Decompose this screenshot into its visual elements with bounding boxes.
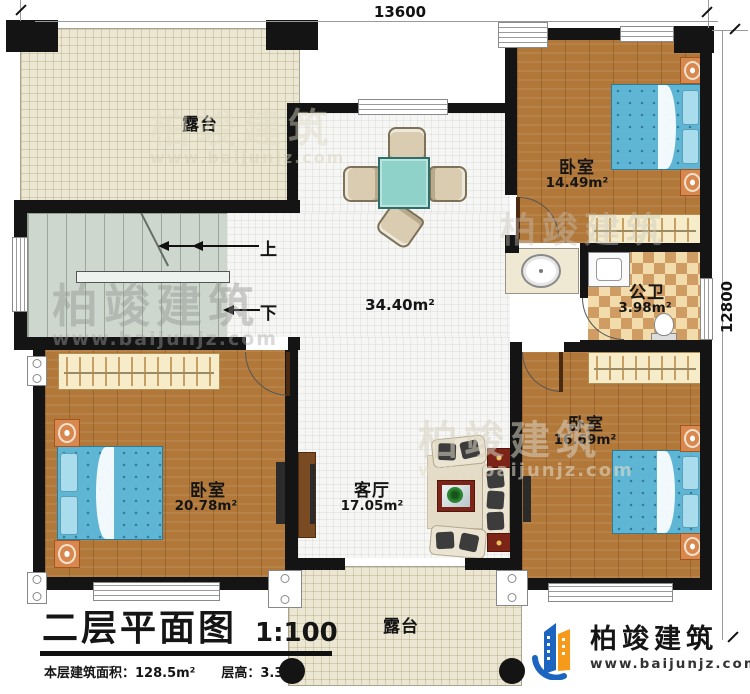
- wall: [287, 103, 358, 113]
- wall: [448, 103, 510, 113]
- bed: [612, 450, 702, 534]
- blanket-fold: [657, 451, 675, 533]
- wall: [298, 558, 345, 570]
- stairs-down-label: 下: [260, 299, 277, 324]
- door-leaf: [286, 352, 290, 396]
- arrowhead: [192, 241, 203, 251]
- title-block: 二层平面图 1:100: [42, 599, 338, 651]
- plant: [447, 487, 463, 503]
- logo-mark-icon: [528, 618, 582, 680]
- wall: [14, 337, 246, 350]
- stairs-down-arrow: [232, 309, 260, 311]
- room-label-terrace-top: 露台: [150, 110, 250, 135]
- logo-website: www.baijunjz.com: [590, 656, 750, 672]
- room-area-living: 17.05m²: [322, 498, 422, 514]
- wardrobe: [58, 353, 220, 390]
- plan-title: 二层平面图: [42, 599, 237, 651]
- window: [620, 26, 674, 42]
- wall: [287, 103, 298, 213]
- window: [548, 583, 673, 602]
- wall: [505, 28, 517, 195]
- dining-table: [378, 157, 430, 209]
- column: [499, 658, 525, 684]
- wall: [580, 243, 712, 252]
- dining-chair: [343, 166, 381, 202]
- cushion: [459, 439, 480, 460]
- company-logo: 柏竣建筑 www.baijunjz.com: [528, 618, 750, 680]
- nightstand: [54, 419, 80, 447]
- room-label-terrace-bottom: 露台: [351, 612, 451, 637]
- wardrobe-rod: [594, 368, 696, 370]
- plan-info: 本层建筑面积：128.5m² 层高：3.3m: [44, 662, 297, 681]
- floor-height-text: 层高：3.3m: [221, 662, 297, 681]
- wardrobe: [588, 214, 702, 246]
- room-area-bedroom-br: 16.69m²: [535, 432, 635, 448]
- wall: [14, 200, 300, 213]
- logo-company-name: 柏竣建筑: [590, 626, 750, 653]
- sofa-loveseat: [429, 525, 487, 560]
- cushion: [486, 469, 505, 489]
- dimension-ext-line: [708, 0, 709, 28]
- wall: [14, 200, 27, 238]
- toilet-bowl: [654, 313, 674, 336]
- washbasin: [521, 254, 561, 288]
- dimension-tick: [15, 4, 26, 15]
- wall: [6, 20, 58, 52]
- dining-chair: [429, 166, 467, 202]
- wall: [564, 342, 712, 352]
- window: [12, 237, 28, 312]
- floor-plan: 露台 卧室 14.49m² 34.40m² 公卫 3.98m² 卧室 16.69…: [0, 0, 750, 694]
- dimension-tick: [729, 23, 740, 34]
- blanket-fold: [658, 85, 676, 169]
- cushion: [438, 443, 457, 461]
- arrowhead: [223, 305, 234, 315]
- wardrobe-rod: [594, 230, 696, 232]
- pillow: [682, 90, 699, 125]
- room-area-bedroom-bl: 20.78m²: [156, 498, 256, 514]
- wall: [266, 20, 318, 50]
- wardrobe-rod: [64, 372, 214, 374]
- title-underline: [40, 651, 332, 656]
- dimension-line-top: [35, 21, 718, 22]
- door-leaf: [516, 197, 520, 239]
- coffee-table: [437, 480, 475, 512]
- stairs-up-label: 上: [260, 235, 277, 260]
- window: [498, 22, 548, 48]
- pillow: [60, 496, 78, 535]
- cushion: [458, 532, 479, 552]
- dimension-tick: [701, 6, 712, 17]
- sofa-loveseat: [431, 434, 488, 468]
- side-table: [487, 533, 511, 552]
- door-leaf: [559, 352, 563, 392]
- bed: [57, 446, 163, 540]
- plan-scale: 1:100: [255, 618, 338, 651]
- side-table: [487, 448, 511, 468]
- wardrobe: [588, 352, 702, 384]
- pilaster: [27, 356, 47, 386]
- tv: [523, 476, 531, 522]
- dimension-right-label: 12800: [718, 277, 736, 337]
- blanket-fold: [96, 447, 114, 539]
- wall: [580, 250, 588, 298]
- tv: [310, 464, 315, 524]
- wall: [465, 558, 522, 570]
- arrowhead: [158, 241, 169, 251]
- pillow: [682, 129, 699, 164]
- cushion: [486, 490, 504, 509]
- floor-area-text: 本层建筑面积：128.5m²: [44, 662, 195, 681]
- room-area-hall: 34.40m²: [340, 296, 460, 314]
- stairs-up-arrow: [167, 245, 259, 247]
- pillow: [682, 494, 699, 528]
- wall: [510, 342, 522, 590]
- stair-railing: [76, 271, 230, 283]
- pilaster: [496, 570, 528, 606]
- room-area-bathroom: 3.98m²: [605, 300, 685, 316]
- dimension-top-label: 13600: [330, 3, 470, 21]
- cushion: [436, 531, 455, 549]
- pillow: [682, 456, 699, 490]
- cushion: [487, 512, 505, 531]
- wall: [288, 337, 300, 350]
- tv: [276, 462, 285, 524]
- sofa-main: [482, 464, 510, 536]
- window: [700, 278, 713, 340]
- room-area-bedroom-tr: 14.49m²: [527, 175, 627, 191]
- pillow: [60, 453, 78, 492]
- window: [358, 99, 448, 115]
- nightstand: [54, 540, 80, 568]
